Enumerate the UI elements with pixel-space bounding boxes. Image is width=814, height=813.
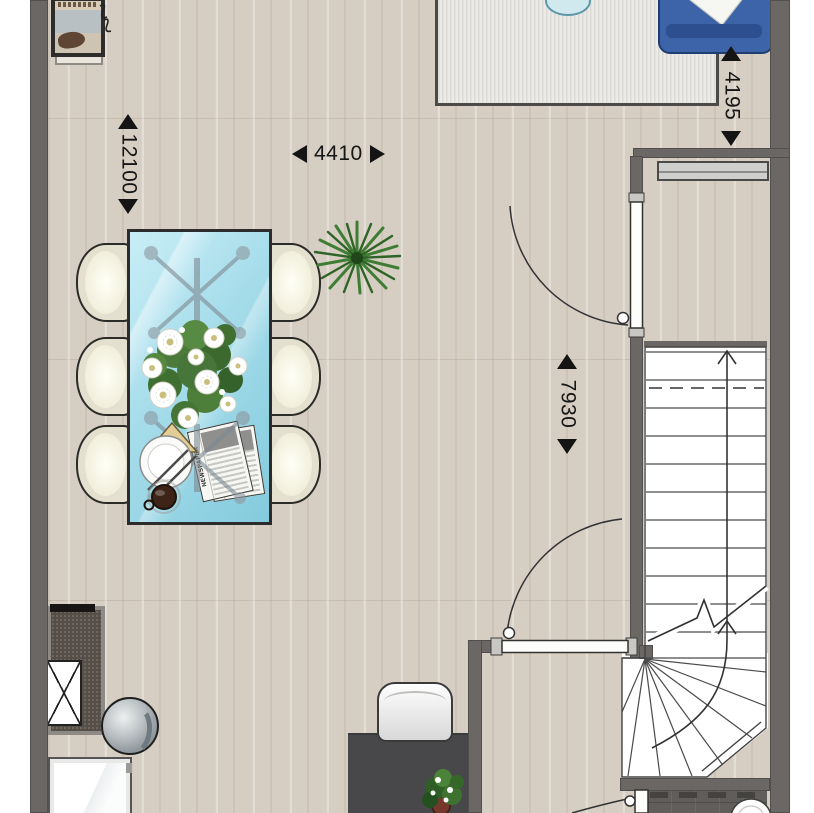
desk-chair: [377, 682, 453, 742]
dining-chair: [265, 243, 321, 322]
dining-chair: [265, 425, 321, 504]
chair-cushion: [85, 433, 126, 496]
dining-chair: [76, 337, 132, 416]
wall-art-caption: [58, 2, 98, 7]
wall-right-exterior: [770, 0, 790, 813]
wall-art-frame: [51, 0, 105, 57]
dining-chair: [76, 425, 132, 504]
dimension-room-width: 4410: [292, 142, 385, 166]
arrow-down-icon: [557, 439, 577, 454]
wall-hall-left: [468, 640, 482, 813]
dimension-living-depth: 4195: [715, 46, 747, 146]
chimney-niche-cap: [50, 604, 95, 612]
desk: [348, 733, 468, 813]
arrow-up-icon: [721, 46, 741, 61]
desk-chair-back: [384, 691, 446, 711]
sofa-seat: [666, 24, 762, 38]
sofa-pillow: [686, 0, 748, 26]
arrow-right-icon: [370, 145, 385, 163]
wall-stub-above-door: [630, 156, 643, 196]
door-post: [639, 645, 653, 659]
bathroom-tiles: [647, 790, 767, 813]
dining-chair: [265, 337, 321, 416]
floor-plan: NEWSPAPER NEWSPAPER: [0, 0, 814, 813]
dimension-label: 4195: [715, 64, 747, 128]
duct-symbol: [46, 660, 82, 726]
wall-below-stairs: [620, 778, 770, 791]
dimension-label: 12100: [112, 132, 144, 196]
wall-hall-top: [633, 148, 790, 158]
chair-cushion: [271, 345, 312, 408]
arrow-up-icon: [557, 354, 577, 369]
dimension-label: 7930: [551, 372, 583, 436]
chair-cushion: [271, 433, 312, 496]
glass-panel-tab: [126, 763, 132, 773]
dimension-room-height: 12100: [112, 114, 144, 214]
arrow-up-icon: [118, 114, 138, 129]
decor-sphere: [101, 697, 159, 755]
radiator: [657, 161, 769, 181]
arrow-down-icon: [118, 199, 138, 214]
stairwell-upper: [644, 346, 767, 659]
wall-stairwell-left: [630, 336, 643, 658]
glass-panel: [48, 757, 132, 813]
chair-cushion: [85, 345, 126, 408]
arrow-down-icon: [721, 131, 741, 146]
wall-left-exterior: [30, 0, 48, 813]
arrow-left-icon: [292, 145, 307, 163]
chair-cushion: [85, 251, 126, 314]
dining-chair: [76, 243, 132, 322]
chair-cushion: [271, 251, 312, 314]
dimension-stair-zone: 7930: [551, 354, 583, 454]
dimension-label: 4410: [314, 142, 363, 166]
